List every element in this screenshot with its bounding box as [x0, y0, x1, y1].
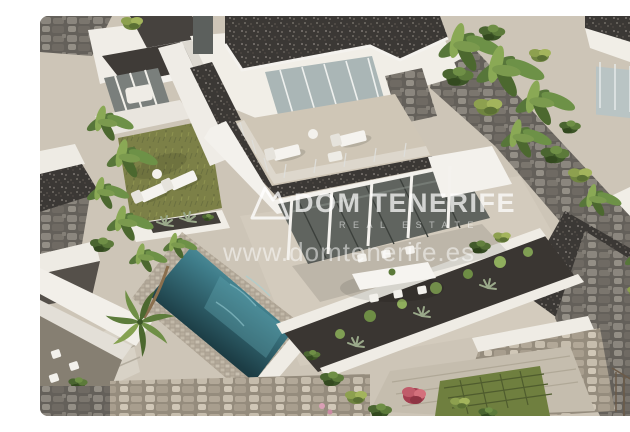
render-scene — [40, 16, 630, 416]
villa-aerial-render: DOM TENERIFE REAL ESTATE www.domtenerife… — [40, 16, 630, 416]
